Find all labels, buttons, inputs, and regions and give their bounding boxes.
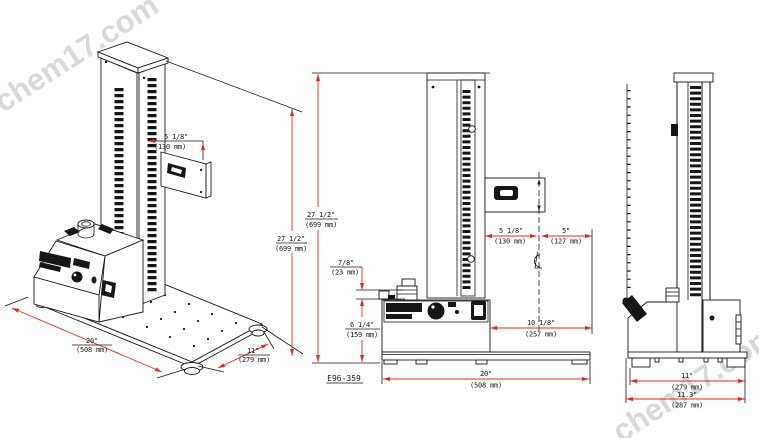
front-button [448, 302, 456, 307]
side-overall-depth-in: 11.3" [677, 391, 697, 399]
front-column-height-in: 27 1/2" [307, 211, 335, 219]
side-connector [736, 315, 741, 344]
front-foot [476, 360, 487, 364]
iso-mounting-bracket [161, 152, 211, 198]
centerline-symbol-icon [535, 252, 543, 268]
front-center-to-base-edge-mm: (257 mm) [525, 331, 557, 339]
side-overall-depth-mm: (287 mm) [671, 402, 703, 410]
front-foot [572, 360, 587, 364]
iso-base-width-in: 20" [86, 337, 98, 345]
iso-column-screw [105, 61, 107, 63]
front-base-width-in: 20" [480, 370, 492, 378]
side-view: 11" (279 mm) 11.3" (287 mm) [622, 73, 747, 410]
front-center-to-edge-in: 5" [562, 227, 570, 235]
front-box-tab [379, 291, 389, 299]
front-view: 27 1/2" (699 mm) 7/8" (23 mm) 6 1/4" (15… [305, 73, 592, 390]
test-stand-drawing: chem17.com chem17.com [0, 0, 759, 438]
front-panel-height-mm: (159 mm) [346, 331, 378, 339]
side-foot [632, 358, 650, 367]
side-clamp-knob [666, 288, 679, 302]
front-knob-height-mm: (23 mm) [331, 269, 359, 277]
iso-bracket-offset-in: 5 1/8" [164, 133, 188, 141]
front-button [455, 310, 459, 314]
front-clamp-knob [397, 279, 417, 300]
iso-column-height-in: 27 1/2" [277, 235, 305, 243]
side-foot [727, 358, 745, 367]
iso-bracket-offset-mm: (130 mm) [154, 143, 186, 151]
side-rear-housing [703, 300, 741, 353]
front-column-height-mm: (699 mm) [305, 221, 337, 229]
front-carriage-roller [469, 126, 476, 133]
front-brand-logo [386, 303, 422, 312]
iso-column-height-mm: (699 mm) [275, 245, 307, 253]
iso-base-depth-in: 11" [247, 347, 259, 355]
technical-drawing-page: chem17.com chem17.com [0, 0, 759, 438]
side-port [710, 316, 715, 321]
front-center-to-edge-mm: (127 mm) [550, 238, 582, 246]
side-feet-depth-in: 11" [681, 372, 693, 380]
front-panel-height-in: 6 1/4" [350, 321, 374, 329]
iso-column-screw [143, 77, 145, 79]
side-front-rod [627, 84, 678, 300]
isometric-view: 5 1/8" (130 mm) 27 1/2" (699 mm) 20" (50… [5, 42, 307, 378]
side-control-box [622, 288, 679, 353]
drawing-number: E96-359 [327, 374, 361, 383]
front-carriage-roller [468, 256, 475, 263]
front-mounting-bracket [485, 172, 545, 334]
iso-control-box [34, 220, 143, 322]
front-column [427, 73, 485, 298]
front-column-to-center-in: 5 1/8" [499, 227, 523, 235]
front-dial-knob [428, 303, 445, 320]
iso-button [92, 277, 97, 284]
front-base [382, 352, 590, 364]
front-base-width-mm: (508 mm) [470, 382, 502, 390]
front-foot [416, 360, 427, 364]
side-base [628, 352, 747, 367]
iso-base-depth-mm: (279 mm) [238, 356, 270, 364]
front-center-to-base-edge-in: 10 1/8" [527, 319, 555, 327]
front-foot [384, 360, 397, 364]
front-column-to-center-mm: (130 mm) [494, 238, 526, 246]
front-knob-height-in: 7/8" [338, 259, 354, 267]
iso-base-width-mm: (508 mm) [76, 346, 108, 354]
iso-dial-knob [72, 272, 83, 283]
